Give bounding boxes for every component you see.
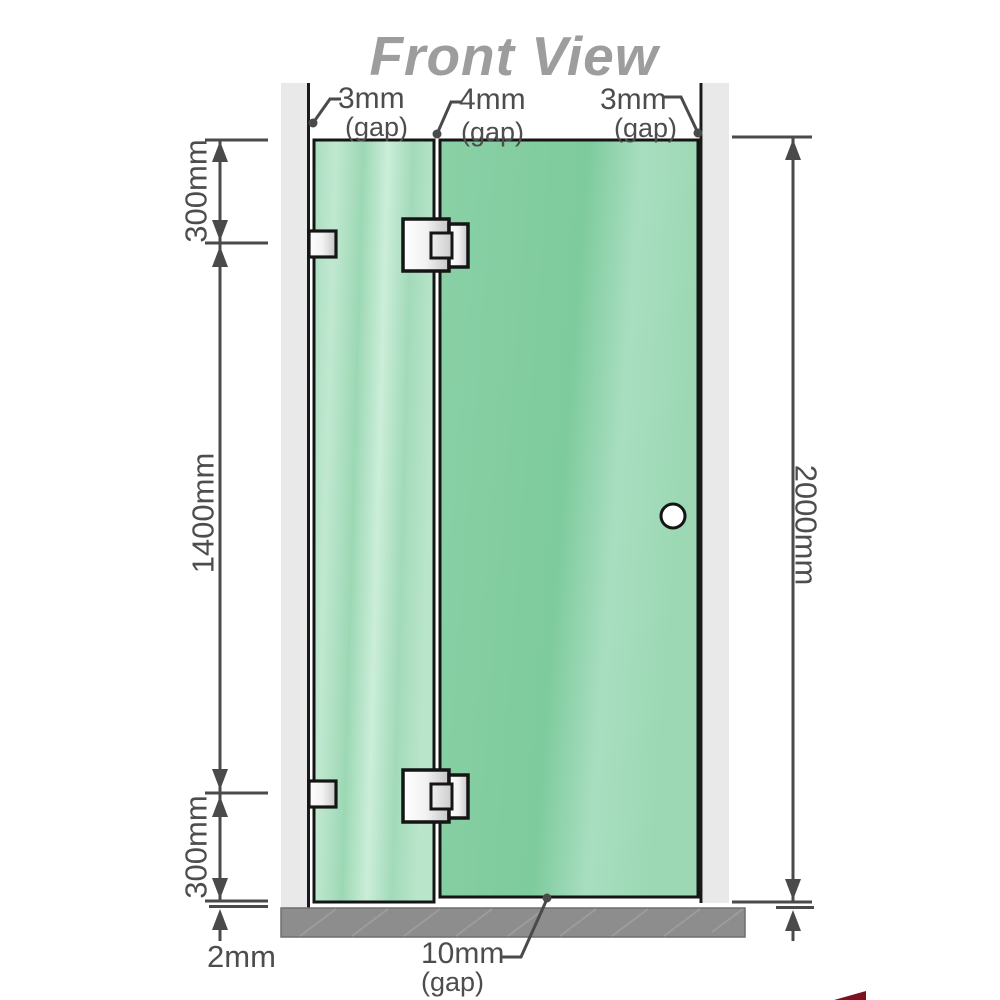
front-view-diagram: Front View 3mm (gap) 4mm (gap) 3mm (gap)… <box>0 0 1000 1000</box>
glass-hinge-top <box>403 219 468 271</box>
gap-value: 10mm <box>421 939 504 969</box>
logo-fragment <box>834 991 866 1000</box>
gap-note: (gap) <box>461 119 526 146</box>
dim-label-2mm: 2mm <box>207 941 276 972</box>
dim-label-1400mm: 1400mm <box>188 453 219 574</box>
floor <box>281 908 745 937</box>
dim-label-2000mm: 2000mm <box>791 465 822 586</box>
left-wall-channel <box>281 83 307 908</box>
gap-note: (gap) <box>421 969 504 996</box>
gap-note: (gap) <box>614 115 677 142</box>
label-gap-top-middle: 4mm (gap) <box>459 85 526 146</box>
diagram-drawing <box>0 0 1000 1000</box>
glass-hinge-bottom <box>403 770 468 822</box>
wall-bracket-bottom <box>309 781 336 807</box>
wall-bracket-top <box>309 231 336 257</box>
door-panel-glass <box>440 140 698 897</box>
label-gap-top-left: 3mm (gap) <box>338 84 408 141</box>
right-wall-channel <box>703 83 729 903</box>
gap-value: 3mm <box>338 84 408 114</box>
dim-label-300mm-top: 300mm <box>181 139 212 242</box>
door-knob <box>661 504 685 528</box>
gap-value: 3mm <box>600 85 677 115</box>
label-gap-top-right: 3mm (gap) <box>600 85 677 142</box>
gap-value: 4mm <box>459 85 526 115</box>
label-gap-bottom: 10mm (gap) <box>421 939 504 996</box>
dim-label-300mm-bottom: 300mm <box>181 795 212 898</box>
page-title: Front View <box>369 24 658 88</box>
gap-note: (gap) <box>345 114 408 141</box>
